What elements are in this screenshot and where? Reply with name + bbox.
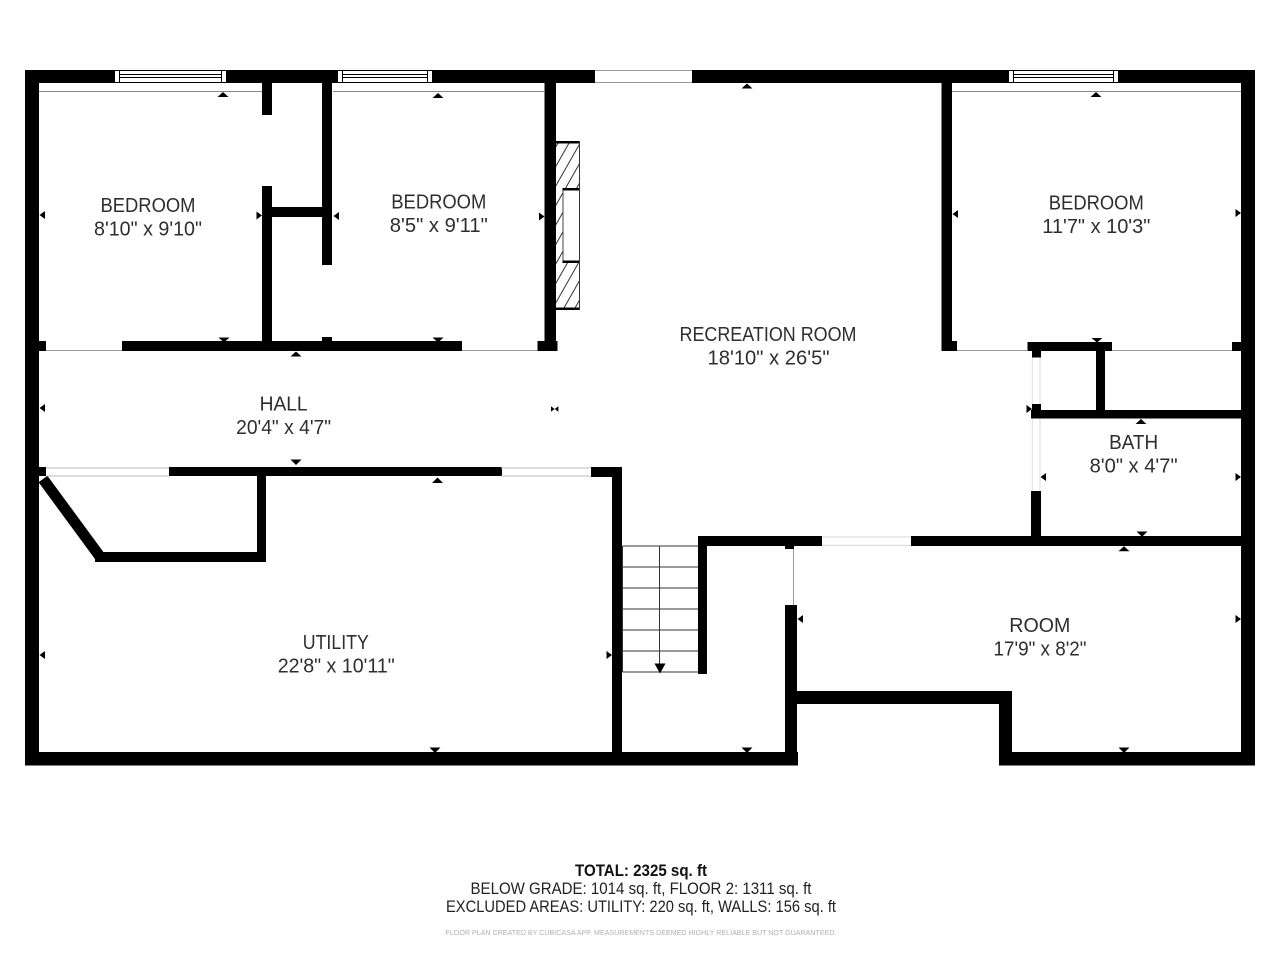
svg-text:TOTAL: 2325 sq. ft: TOTAL: 2325 sq. ft	[575, 862, 707, 880]
svg-text:BEDROOM: BEDROOM	[391, 192, 486, 214]
svg-text:RECREATION ROOM: RECREATION ROOM	[680, 324, 857, 346]
svg-text:8'0" x 4'7": 8'0" x 4'7"	[1090, 456, 1178, 478]
svg-text:EXCLUDED AREAS: UTILITY: 220 s: EXCLUDED AREAS: UTILITY: 220 sq. ft, WAL…	[446, 898, 836, 916]
svg-text:UTILITY: UTILITY	[303, 632, 369, 654]
svg-text:11'7" x 10'3": 11'7" x 10'3"	[1042, 216, 1150, 238]
svg-text:BEDROOM: BEDROOM	[101, 195, 196, 217]
svg-text:BELOW GRADE: 1014 sq. ft, FLOO: BELOW GRADE: 1014 sq. ft, FLOOR 2: 1311 …	[471, 880, 812, 898]
svg-text:18'10" x 26'5": 18'10" x 26'5"	[708, 348, 830, 370]
svg-text:FLOOR PLAN CREATED BY CUBICASA: FLOOR PLAN CREATED BY CUBICASA APP. MEAS…	[446, 928, 837, 937]
svg-text:BATH: BATH	[1109, 432, 1158, 454]
svg-text:8'5" x 9'11": 8'5" x 9'11"	[390, 215, 488, 237]
svg-text:8'10" x 9'10": 8'10" x 9'10"	[94, 219, 202, 241]
svg-text:ROOM: ROOM	[1009, 615, 1070, 637]
svg-text:17'9" x 8'2": 17'9" x 8'2"	[994, 639, 1087, 661]
svg-text:22'8" x 10'11": 22'8" x 10'11"	[278, 656, 395, 678]
svg-text:HALL: HALL	[260, 394, 308, 416]
svg-text:BEDROOM: BEDROOM	[1049, 193, 1144, 215]
svg-text:20'4" x 4'7": 20'4" x 4'7"	[236, 417, 331, 439]
